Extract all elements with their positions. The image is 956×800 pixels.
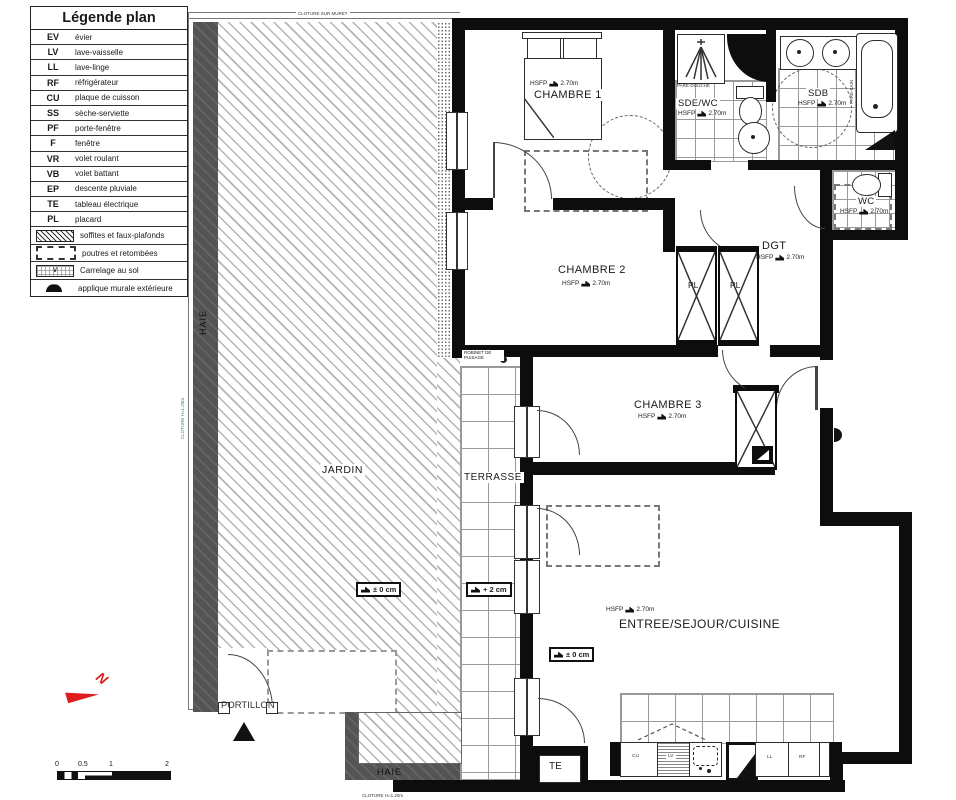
hsfp-label: HSFP: [562, 280, 579, 287]
terrace-level-marker: + 2 cm: [466, 582, 512, 597]
legend-abbr: EP: [31, 184, 75, 194]
hsfp-value: 2.70m: [560, 80, 578, 87]
wall-light-icon: [834, 428, 842, 442]
legend-symbol-row: poutres et retombées: [31, 245, 187, 263]
scale-tick-label: 2: [165, 761, 169, 768]
level-icon: [471, 587, 480, 593]
hsfp-icon: [859, 209, 868, 215]
north-entry-triangle-icon: [233, 722, 255, 741]
legend-label: placard: [75, 215, 101, 224]
bed-pillow: [527, 38, 561, 60]
scale-tick-label: 0.5: [78, 761, 88, 768]
legend-label: Carrelage au sol: [80, 266, 139, 275]
sejour-level-marker: ± 0 cm: [549, 647, 594, 662]
wall-light-swatch-icon: [46, 284, 62, 292]
hsfp-label: HSFP: [606, 606, 623, 613]
cooktop-label: CU: [632, 754, 639, 759]
hedge-bottom-label: HAIE: [377, 767, 402, 777]
drain-dot: [751, 135, 755, 139]
hsfp-value: 2.70m: [708, 110, 726, 117]
legend-label: applique murale extérieure: [78, 284, 173, 293]
legend-label: lave-vaisselle: [75, 48, 123, 57]
hsfp-label: HSFP: [530, 80, 547, 87]
legend-abbr: PF: [31, 123, 75, 133]
legend-label: tableau électrique: [75, 200, 138, 209]
legend-abbr: SS: [31, 108, 75, 118]
legend-symbol-row: soffites et faux-plafonds: [31, 227, 187, 245]
window-swing: [537, 410, 580, 455]
legend-label: évier: [75, 33, 92, 42]
room-label: CHAMBRE 3: [632, 399, 704, 411]
legend-label: fenêtre: [75, 139, 100, 148]
legend-label: volet battant: [75, 169, 119, 178]
hsfp-icon: [775, 255, 784, 261]
legend-row: VRvolet roulant: [31, 152, 187, 167]
wall: [452, 30, 465, 358]
oven-wedge: [737, 754, 755, 778]
fence-top-2: [188, 18, 460, 19]
wall: [770, 345, 820, 357]
legend-abbr: LL: [31, 62, 75, 72]
legend-panel: Légende plan EVévier LVlave-vaisselle LL…: [30, 6, 188, 297]
garden-label: JARDIN: [320, 464, 365, 476]
window: [514, 678, 540, 736]
wall: [899, 526, 912, 764]
duct-triangle: [757, 450, 769, 460]
toilet-bowl: [739, 97, 762, 125]
legend-label: volet roulant: [75, 154, 119, 163]
legend-abbr: RF: [31, 78, 75, 88]
hsfp-label: HSFP: [840, 208, 857, 215]
window: [446, 112, 468, 170]
hsfp-value: 2.70m: [786, 254, 804, 261]
hsfp-label: HSFP: [798, 100, 815, 107]
hood-dashed: [636, 722, 708, 742]
legend-abbr: VB: [31, 169, 75, 179]
legend-row: EPdescente pluviale: [31, 182, 187, 197]
room-label: ENTREE/SEJOUR/CUISINE: [617, 617, 782, 631]
legend-row: LLlave-linge: [31, 60, 187, 75]
legend-abbr: CU: [31, 93, 75, 103]
window: [514, 560, 540, 614]
scale-tick-label: 0: [55, 761, 59, 768]
dishwasher-unit: [657, 742, 690, 777]
legend-row: Ffenêtre: [31, 136, 187, 151]
floor-plan-page: Légende plan EVévier LVlave-vaisselle LL…: [0, 0, 956, 800]
wall: [748, 160, 820, 170]
wall: [452, 18, 908, 30]
garden-level-marker: ± 0 cm: [356, 582, 401, 597]
legend-abbr: TE: [31, 199, 75, 209]
entry-door-leaf: [815, 366, 818, 410]
wall: [830, 752, 912, 764]
path-dashed-area: [267, 650, 397, 714]
level-icon: [554, 652, 563, 658]
entry-door-opening: [820, 360, 833, 408]
duct-block: [752, 446, 773, 464]
drain-dot: [797, 50, 801, 54]
shower-screen-label: PARE-DOUCHE: [677, 83, 710, 88]
legend-label: réfrigérateur: [75, 78, 119, 87]
scale-segment: [112, 772, 170, 779]
room-label: CHAMBRE 2: [556, 264, 628, 276]
hedge-left-label: HAIE: [198, 310, 208, 335]
legend-row: EVévier: [31, 30, 187, 45]
tiles-swatch-icon: ∨: [36, 265, 74, 277]
legend-abbr: EV: [31, 32, 75, 42]
bed-fold-line: [524, 98, 554, 138]
hsfp-icon: [697, 111, 706, 117]
washer-label: LL: [767, 755, 772, 760]
wall: [663, 160, 711, 170]
hsfp-value: 2.70m: [636, 606, 654, 613]
sejour-level-value: ± 0 cm: [566, 650, 589, 659]
terrace-label: TERRASSE: [462, 472, 524, 483]
fence-left-label: CLOTURE H=1.20m: [180, 398, 185, 439]
legend-symbol-row: ∨Carrelage au sol: [31, 262, 187, 280]
bed-pillow: [563, 38, 597, 60]
hsfp-icon: [549, 81, 558, 87]
shower-icon: [677, 34, 725, 84]
gate-label: PORTILLON: [221, 700, 275, 711]
hsfp-icon: [817, 101, 826, 107]
hsfp-icon: [625, 607, 634, 613]
bath-door-leaf: [865, 130, 895, 150]
wall: [820, 512, 912, 526]
hatch-swatch-icon: [36, 230, 74, 242]
legend-row: RFréfrigérateur: [31, 76, 187, 91]
garden-level-value: ± 0 cm: [373, 585, 396, 594]
room-label: SDB: [806, 88, 830, 99]
fence-left: [188, 12, 189, 710]
fridge-label: RF: [799, 755, 805, 760]
scale-bar: [57, 771, 171, 780]
wall: [663, 198, 675, 252]
washer-unit: [755, 742, 790, 777]
legend-label: soffites et faux-plafonds: [80, 231, 164, 240]
hsfp-label: HSFP: [756, 254, 773, 261]
sink-basin: [693, 746, 718, 766]
garden-hatch-strip: [437, 358, 460, 712]
shower-door-leaf: [727, 34, 771, 82]
drain-dot: [873, 104, 878, 109]
tap-dot: [699, 767, 702, 770]
hsfp-value: 2.70m: [828, 100, 846, 107]
bath-screen-label: PARE-BAIN: [849, 80, 854, 104]
legend-row: TEtableau électrique: [31, 197, 187, 212]
hsfp-value: 2.70m: [870, 208, 888, 215]
wall: [820, 160, 908, 170]
legend-label: descente pluviale: [75, 184, 137, 193]
wall: [553, 198, 675, 210]
window: [446, 212, 468, 270]
legend-row: SSsèche-serviette: [31, 106, 187, 121]
room-label: SDE/WC: [676, 98, 720, 109]
legend-label: lave-linge: [75, 63, 109, 72]
wall: [465, 198, 493, 210]
dishwasher-label: LV: [666, 754, 676, 759]
closet-label: PL: [730, 280, 740, 290]
oven-unit: [726, 742, 758, 781]
legend-abbr: LV: [31, 47, 75, 57]
scale-tick-label: 1: [109, 761, 113, 768]
north-arrow-icon: [65, 684, 99, 703]
tap-dot: [707, 769, 711, 773]
room-label: DGT: [760, 240, 788, 252]
hsfp-icon: [581, 281, 590, 287]
legend-abbr: VR: [31, 154, 75, 164]
fence-bottom-label: CLOTURE H=1.20m: [360, 793, 405, 798]
legend-abbr: F: [31, 138, 75, 148]
terrace-tiles: [460, 366, 522, 780]
legend-row: PFporte-fenêtre: [31, 121, 187, 136]
wall: [393, 780, 845, 792]
legend-title: Légende plan: [31, 7, 187, 30]
hsfp-icon: [657, 414, 666, 420]
door-swing: [794, 186, 825, 229]
scale-segment: [85, 772, 112, 779]
scale-segment: [58, 772, 85, 779]
end-cabinet: [819, 742, 830, 777]
cooktop-unit: [620, 742, 658, 777]
drain-dot: [833, 50, 837, 54]
legend-label: porte-fenêtre: [75, 124, 121, 133]
wall: [820, 230, 908, 240]
legend-row: CUplaque de cuisson: [31, 91, 187, 106]
dashed-swatch-icon: [36, 246, 76, 260]
level-icon: [361, 587, 370, 593]
toilet-bowl: [852, 174, 881, 196]
closet-label: PL: [688, 280, 698, 290]
hsfp-value: 2.70m: [592, 280, 610, 287]
garden-hatch: [218, 22, 437, 712]
hsfp-label: HSFP: [678, 110, 695, 117]
tap-label: ROBINET DE PUISAGE: [462, 350, 504, 361]
terrace-level-value: + 2 cm: [483, 585, 507, 594]
legend-row: PLplacard: [31, 212, 187, 227]
legend-label: poutres et retombées: [82, 249, 158, 258]
turning-circle: [772, 68, 852, 148]
legend-abbr: PL: [31, 214, 75, 224]
room-label: CHAMBRE 1: [532, 89, 604, 101]
door-leaf: [493, 142, 495, 198]
hedge-bottom-hatch: [358, 712, 462, 764]
hsfp-value: 2.70m: [668, 413, 686, 420]
closet-pl: [718, 246, 759, 346]
legend-symbol-row: applique murale extérieure: [31, 280, 187, 297]
hsfp-label: HSFP: [638, 413, 655, 420]
legend-row: VBvolet battant: [31, 167, 187, 182]
legend-label: plaque de cuisson: [75, 93, 140, 102]
electrical-panel-label: TE: [549, 761, 562, 772]
entry-door-swing: [776, 366, 817, 409]
legend-label: sèche-serviette: [75, 109, 129, 118]
fence-top-label: CLOTURE SUR MURET: [296, 11, 350, 16]
hedge-left: [193, 22, 218, 712]
terrace-door-swing: [538, 698, 585, 743]
closet-pl: [676, 246, 717, 346]
wall: [663, 30, 675, 170]
legend-row: LVlave-vaisselle: [31, 45, 187, 60]
room-label: WC: [856, 196, 876, 207]
